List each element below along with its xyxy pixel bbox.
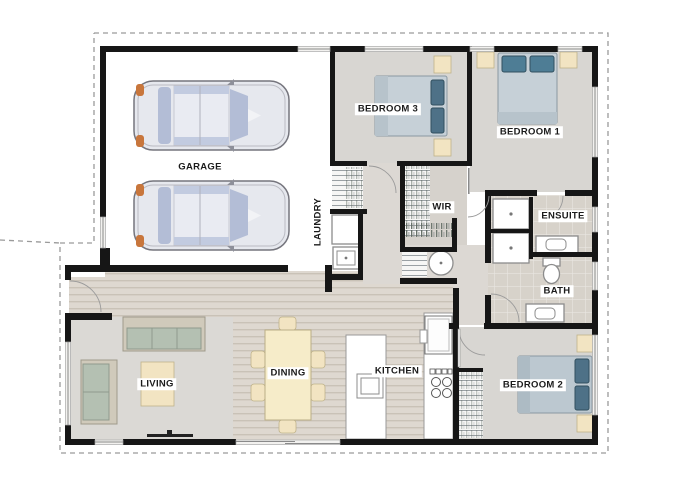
pillow bbox=[530, 56, 554, 72]
laundry-fixtures bbox=[332, 215, 359, 269]
bedroom2-wardrobe-clothes bbox=[459, 372, 483, 438]
hwc-cupboard-shelf bbox=[402, 249, 427, 277]
laundry-bench bbox=[332, 215, 359, 244]
kitchen-upper-floor bbox=[363, 284, 453, 317]
wir-door-leaf bbox=[468, 168, 470, 194]
pillow bbox=[502, 56, 526, 72]
walkway-floor bbox=[105, 271, 363, 317]
counter-handle bbox=[420, 330, 427, 343]
pillow bbox=[575, 359, 589, 383]
dining-chair bbox=[251, 351, 265, 368]
bedroom2-door-leaf bbox=[458, 329, 460, 367]
room-label-dining: DINING bbox=[267, 367, 308, 379]
room-label-bath: BATH bbox=[541, 285, 574, 297]
room-label-bedroom2: BEDROOM 2 bbox=[500, 379, 566, 391]
room-label-garage: GARAGE bbox=[175, 161, 225, 173]
wir-clothes-rail bbox=[405, 223, 453, 237]
room-label-wir: WIR bbox=[429, 201, 454, 213]
bedside-table bbox=[577, 335, 593, 352]
car-accent-light bbox=[136, 84, 144, 96]
car-2 bbox=[134, 179, 289, 252]
car-1 bbox=[134, 79, 289, 152]
hall-floor bbox=[363, 163, 402, 284]
linen-contents bbox=[345, 167, 362, 208]
pillow bbox=[431, 108, 444, 133]
tv-unit bbox=[147, 434, 193, 437]
bedside-table bbox=[477, 52, 494, 68]
bedside-table bbox=[560, 52, 577, 68]
dining-chair bbox=[279, 420, 296, 433]
pillow bbox=[575, 386, 589, 410]
dining-chair bbox=[311, 351, 325, 368]
dining-chair bbox=[279, 317, 296, 330]
wardrobe-wall bbox=[459, 368, 483, 372]
room-label-kitchen: KITCHEN bbox=[372, 365, 422, 377]
floor-plan: GARAGE LAUNDRY BEDROOM 3 BEDROOM 1 WIR E… bbox=[0, 0, 700, 500]
bedside-table bbox=[577, 415, 593, 432]
bedside-table bbox=[434, 56, 451, 73]
room-label-ensuite: ENSUITE bbox=[538, 210, 587, 222]
floor-plan-drawing bbox=[0, 0, 700, 500]
car-rear-window bbox=[158, 87, 171, 144]
room-label-bedroom1: BEDROOM 1 bbox=[497, 126, 563, 138]
pillow bbox=[431, 80, 444, 105]
room-label-bedroom3: BEDROOM 3 bbox=[355, 103, 421, 115]
dining-chair bbox=[311, 384, 325, 401]
fridge bbox=[425, 316, 452, 354]
room-label-laundry: LAUNDRY bbox=[312, 195, 324, 249]
toilet-bowl bbox=[544, 265, 560, 284]
car-windshield bbox=[230, 89, 248, 142]
dining-chair bbox=[251, 384, 265, 401]
hwc-dot bbox=[440, 262, 443, 265]
room-label-living: LIVING bbox=[137, 378, 176, 390]
bedside-table bbox=[434, 139, 451, 156]
entry-floor bbox=[69, 277, 108, 315]
